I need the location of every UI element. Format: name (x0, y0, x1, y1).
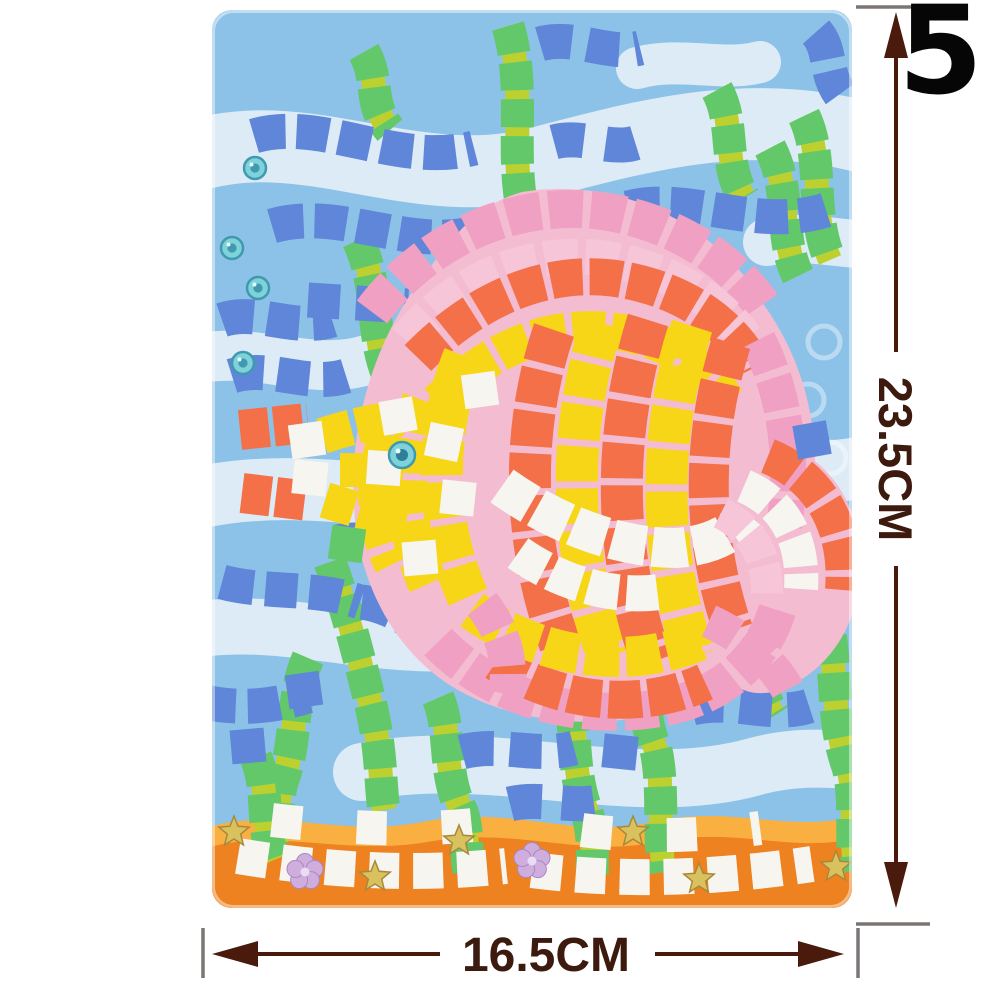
width-dimension-label: 16.5CM (462, 929, 630, 982)
width-arrowhead-right-icon (798, 941, 844, 967)
mosaic-card (212, 10, 852, 908)
height-dimension-label: 23.5CM (869, 377, 922, 542)
width-arrowhead-left-icon (212, 941, 258, 967)
mosaic-scene (212, 10, 852, 908)
size-number-label: 5 (898, 0, 980, 124)
product-photo: 23.5CM 16.5CM 5 (0, 0, 1002, 1002)
height-arrowhead-down-icon (884, 862, 908, 908)
mosaic-canvas (212, 10, 852, 908)
